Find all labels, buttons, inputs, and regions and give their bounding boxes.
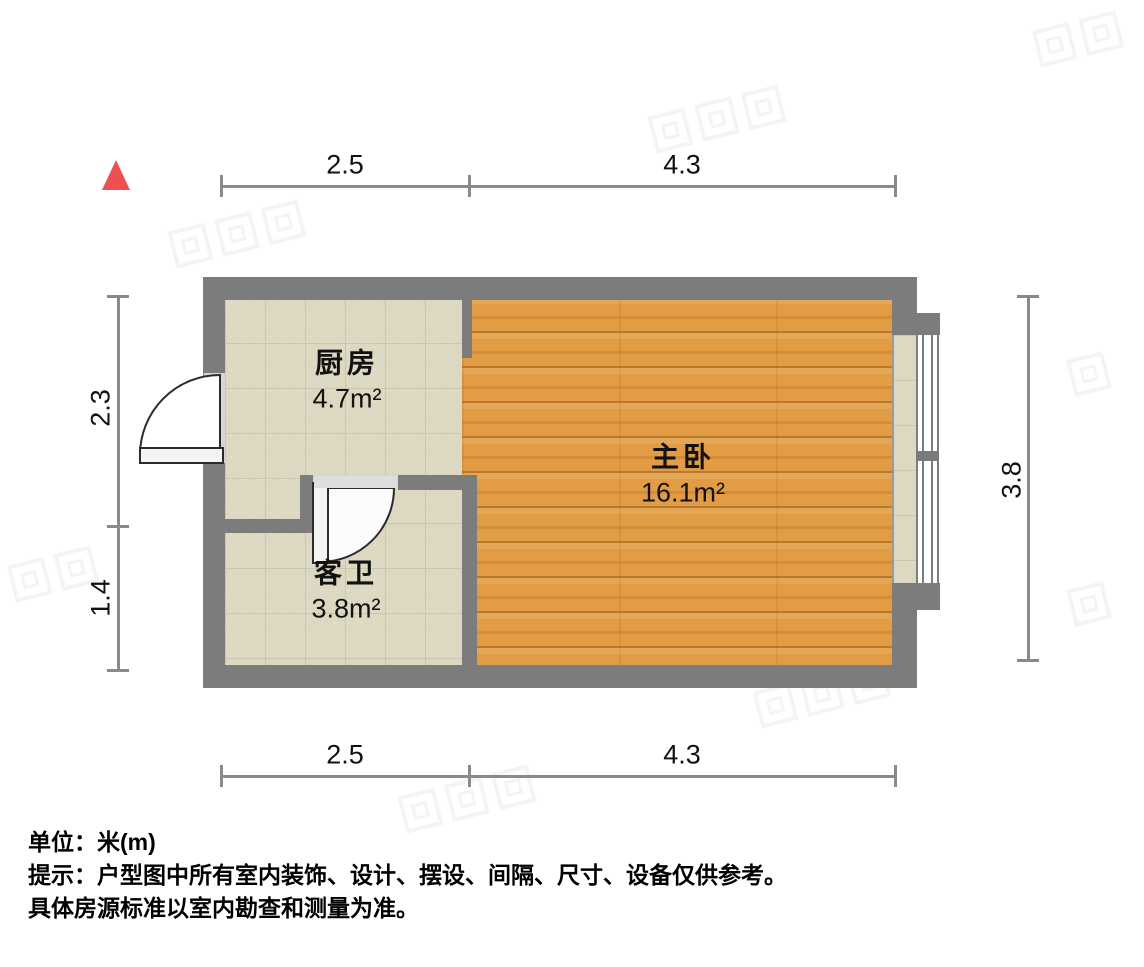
dimension-left: 2.3 1.4 bbox=[117, 295, 120, 672]
wall-right-lower bbox=[892, 610, 917, 688]
dim-left-upper-value: 2.3 bbox=[86, 389, 117, 427]
footer-notes: 单位：米(m) 提示：户型图中所有室内装饰、设计、摆设、间隔、尺寸、设备仅供参考… bbox=[28, 826, 787, 925]
dim-top-right-value: 4.3 bbox=[663, 150, 701, 181]
unit-note: 单位：米(m) bbox=[28, 826, 787, 859]
watermark-logo bbox=[1032, 10, 1125, 68]
wall-left bbox=[203, 277, 225, 688]
wall-right-upper bbox=[892, 277, 917, 313]
kitchen-name: 厨房 bbox=[312, 342, 381, 382]
wall-bottom bbox=[203, 665, 917, 688]
watermark-logo bbox=[1066, 581, 1112, 627]
entry-door-icon bbox=[130, 363, 240, 473]
disclaimer-line2: 具体房源标准以室内勘查和测量为准。 bbox=[28, 892, 787, 925]
window-sill bbox=[892, 335, 918, 583]
bedroom-name: 主卧 bbox=[641, 436, 725, 476]
dim-left-lower-value: 1.4 bbox=[86, 579, 117, 617]
disclaimer-line1: 提示：户型图中所有室内装饰、设计、摆设、间隔、尺寸、设备仅供参考。 bbox=[28, 859, 787, 892]
north-arrow-icon bbox=[102, 160, 130, 190]
bedroom-area: 16.1m² bbox=[641, 478, 725, 509]
wall-top bbox=[203, 277, 917, 300]
bay-window-bottom-cap bbox=[892, 583, 940, 610]
wall-kitchen-bedroom-stub bbox=[462, 298, 472, 358]
watermark-logo bbox=[1066, 351, 1112, 397]
dim-right-value: 3.8 bbox=[997, 461, 1028, 499]
wall-bath-bedroom bbox=[462, 475, 477, 665]
bay-window-top-cap bbox=[892, 313, 940, 335]
dim-bottom-right-value: 4.3 bbox=[663, 740, 701, 771]
watermark-logo bbox=[647, 84, 786, 153]
window-mullion bbox=[916, 451, 939, 461]
dim-bottom-left-value: 2.5 bbox=[326, 740, 364, 771]
room-label-bedroom: 主卧 16.1m² bbox=[641, 436, 725, 509]
bath-door-header bbox=[314, 476, 397, 488]
dimension-bottom: 2.5 4.3 bbox=[220, 775, 897, 778]
room-label-bathroom: 客卫 3.8m² bbox=[311, 552, 380, 625]
wall-kitchen-bath bbox=[225, 519, 313, 533]
dimension-right: 3.8 bbox=[1027, 295, 1030, 662]
room-label-kitchen: 厨房 4.7m² bbox=[312, 342, 381, 415]
dim-top-left-value: 2.5 bbox=[326, 150, 364, 181]
watermark-logo bbox=[167, 199, 306, 268]
dimension-top: 2.5 4.3 bbox=[220, 185, 897, 188]
bathroom-area: 3.8m² bbox=[311, 594, 380, 625]
kitchen-area: 4.7m² bbox=[312, 384, 381, 415]
bathroom-name: 客卫 bbox=[311, 552, 380, 592]
floor-plan-page: 厨房 4.7m² 客卫 3.8m² 主卧 16.1m² 2.5 4.3 2.5 … bbox=[0, 0, 1144, 967]
